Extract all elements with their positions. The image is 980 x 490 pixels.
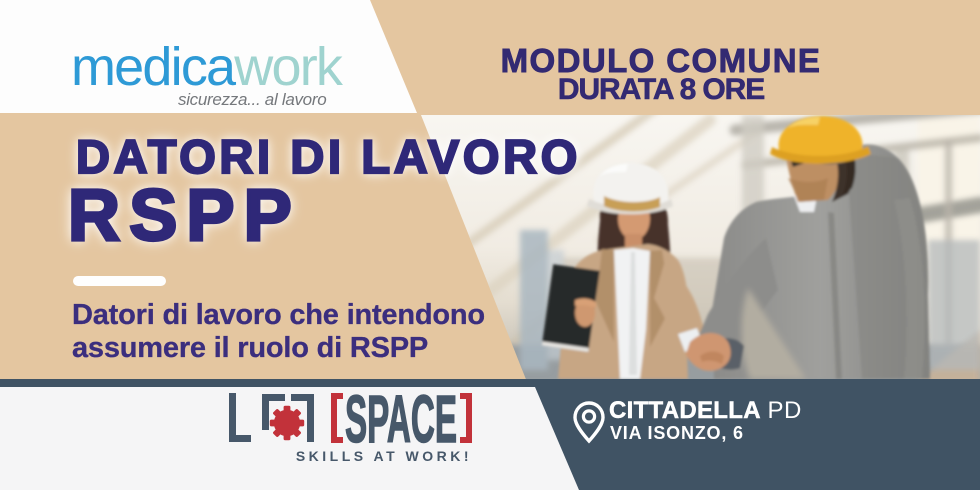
svg-text:SPACE: SPACE	[345, 390, 457, 457]
svg-text:SKILLS AT WORK!: SKILLS AT WORK!	[296, 448, 472, 464]
